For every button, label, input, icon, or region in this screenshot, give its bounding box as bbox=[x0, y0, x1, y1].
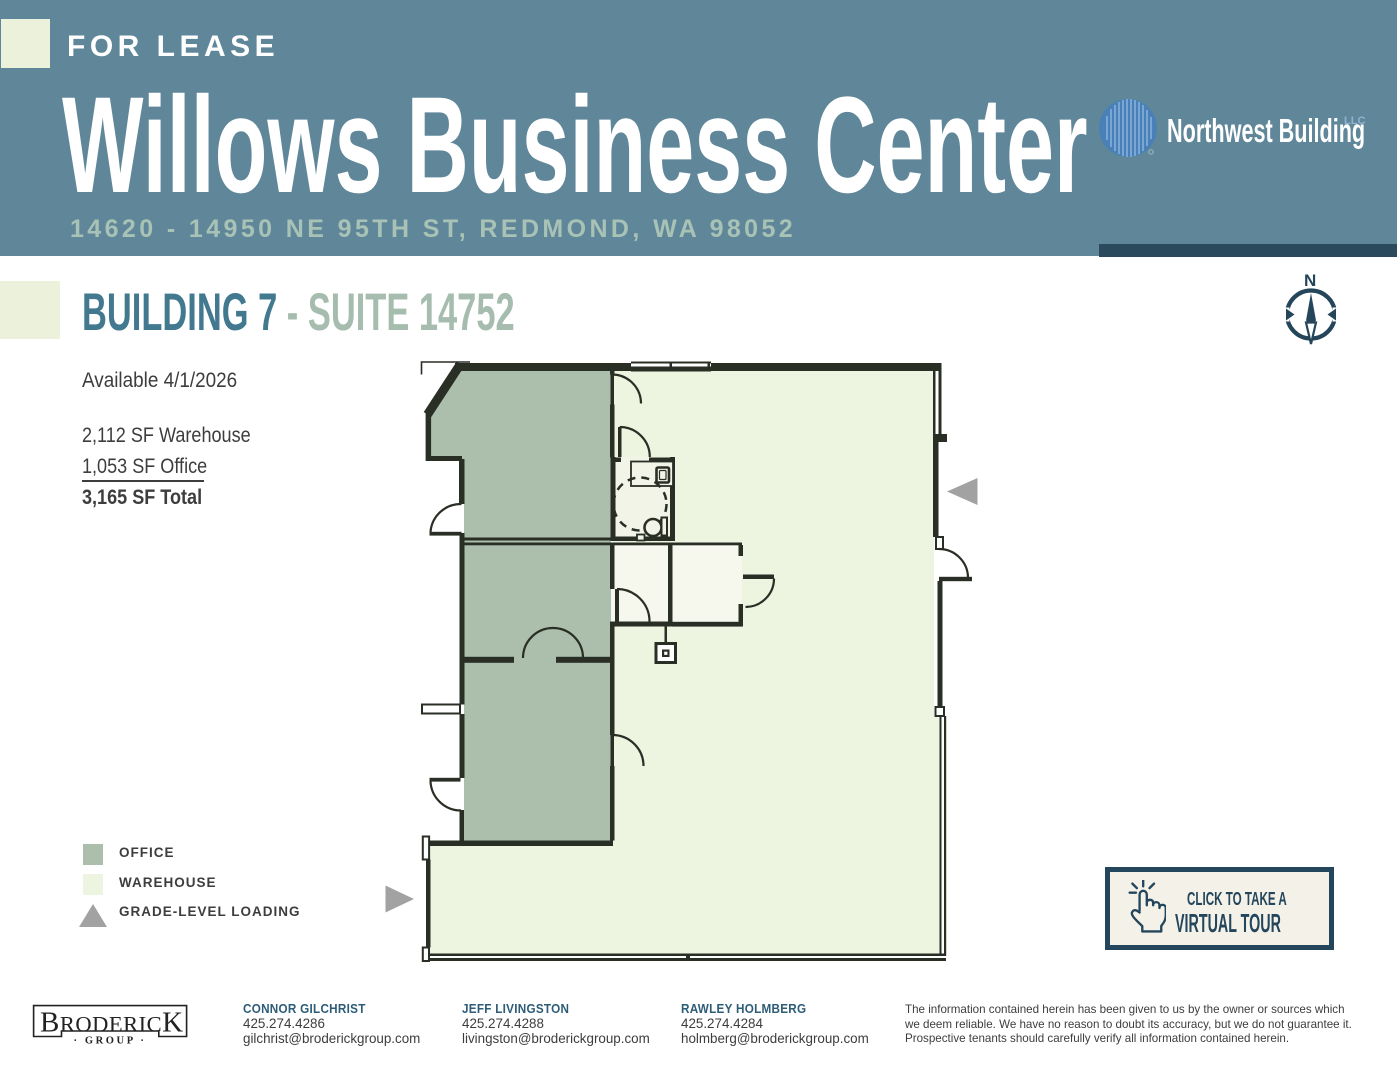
svg-text:· GROUP ·: · GROUP · bbox=[74, 1036, 147, 1047]
svg-text:BRODERICK: BRODERICK bbox=[40, 1007, 184, 1039]
